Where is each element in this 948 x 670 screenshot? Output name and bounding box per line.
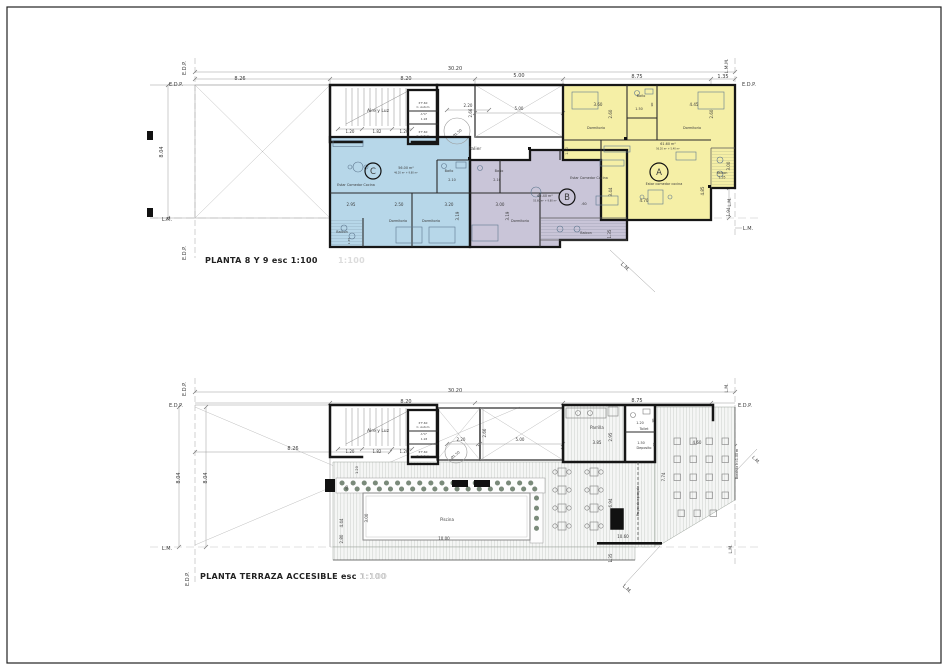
lot-edge <box>195 405 330 547</box>
plan-label: 65.40 m² <box>537 194 553 198</box>
plan-label: L.M. <box>162 217 173 223</box>
plan-label: Balcon <box>717 171 728 175</box>
plan-label: 8.04 <box>203 472 209 483</box>
sheet-border <box>7 7 941 663</box>
plan-label: Estar comedor cocina <box>646 182 683 186</box>
plan-label: 56.20 m² + 5.40 m² <box>656 148 680 151</box>
plan-label: 3.00 <box>496 202 505 207</box>
plan-label: L.M. <box>727 197 733 206</box>
plan-label: 2.10 <box>493 178 501 182</box>
plan1-title: PLANTA 8 Y 9 esc 1:100 <box>205 256 318 265</box>
plan-label: A°C° <box>421 112 428 116</box>
plan-label: L.M. <box>621 584 633 596</box>
plan-label: 5.00 <box>515 106 524 111</box>
plan-label: 2.20 <box>464 103 473 108</box>
boundary-bar <box>597 542 662 545</box>
plan-label: 1.18 <box>421 117 427 121</box>
wall-tick <box>147 208 153 217</box>
plan-label: 8.75 <box>631 398 642 404</box>
plan-label: Ø1.50 <box>449 450 460 461</box>
floor-plans-sheet: E.D.P.E.D.P.30.208.268.205.008.751.35E.D… <box>0 0 948 670</box>
plan-label: 2.60 <box>608 109 613 118</box>
lot-edge <box>150 85 330 218</box>
plan-8-9: E.D.P.E.D.P.30.208.268.205.008.751.35E.D… <box>147 58 760 292</box>
plan-label: 8.26 <box>234 76 245 82</box>
plan-label: 2.10 <box>448 178 456 182</box>
plan-label: C. Autom <box>417 454 430 458</box>
plan-label: 2.80 <box>339 534 344 543</box>
plan-label: E.D.P. <box>738 403 752 409</box>
plan-label: 10.60 <box>617 534 629 539</box>
plan-label: 3.00 <box>364 513 369 522</box>
plan-label: 2.95 <box>347 202 356 207</box>
plan-label: Parrilla <box>590 425 604 430</box>
plan-label: E.D.P. <box>182 246 188 260</box>
plan-label: 55.60 m² + 9.80 m² <box>533 200 557 203</box>
plan-label: E.D.P. <box>182 382 188 396</box>
plan-label: Baranda h=1.00 m <box>735 449 739 479</box>
plan-label: Aire y Luz <box>367 428 390 434</box>
plan-label: 2.66 <box>482 428 487 437</box>
plan-label: C. Autom <box>417 105 430 109</box>
plan-label: 3.60 <box>594 102 603 107</box>
plan-label: 1.20 <box>400 129 409 134</box>
plan-label: 4.70 <box>640 198 649 203</box>
balcony-b <box>541 219 626 239</box>
plan-label: 30.20 <box>448 66 462 72</box>
plan-label: .60 <box>345 485 349 491</box>
plan-label: Dormitorio <box>511 219 529 223</box>
plan-label: 5.00 <box>513 73 524 79</box>
plan-label: Estar Comedor Cocina <box>337 183 375 187</box>
plan-label: L.M. <box>743 226 754 232</box>
plan-label: 1.20 <box>355 466 359 474</box>
plan-label: 4.60 <box>693 440 702 445</box>
plan-label: .90 <box>652 443 656 448</box>
plan-label: Palier <box>469 146 482 152</box>
plan-label: Dormitorio <box>683 126 701 130</box>
plan-label: 3.85 <box>593 440 602 445</box>
bench <box>474 480 490 487</box>
door-jamb <box>708 185 711 188</box>
plan-label: B <box>564 193 570 203</box>
plan-label: L.M. <box>724 383 730 392</box>
plan-label: 3.19 <box>505 211 510 220</box>
plan-label: 10.00 <box>438 536 450 541</box>
plan-label: C. Autom <box>417 425 430 429</box>
plan-label: 1.50 <box>637 441 645 445</box>
plan-label: 4.85 <box>700 186 705 195</box>
plan-label: L.M. <box>162 546 173 552</box>
void-center <box>445 85 565 137</box>
plan-label: 1.20 <box>346 129 355 134</box>
plan-label: 1.20 <box>636 421 644 425</box>
plan2-title: PLANTA TERRAZA ACCESIBLE esc 1:100 <box>200 572 387 581</box>
door-jamb <box>528 147 531 150</box>
plan-label: L.M.M. <box>724 59 730 74</box>
plan-label: Dormitorio <box>587 126 605 130</box>
plan-label: 1.94 <box>726 207 731 216</box>
plan-label: 6.94 <box>608 498 613 507</box>
plan-label: 1.35 <box>608 553 613 562</box>
plan-label: 2.95 <box>608 432 613 441</box>
door-jamb <box>468 157 471 160</box>
wall-tick <box>147 131 153 140</box>
plan-label: A <box>656 168 662 178</box>
plan-label: Proyeccion pergola <box>636 486 640 516</box>
plan-label: 1.35 <box>607 229 612 238</box>
plan-label: A°C° <box>421 432 428 436</box>
plan-label: 1.35 <box>718 176 725 180</box>
door-jamb <box>624 137 627 140</box>
plan-label: 1.82 <box>373 129 382 134</box>
plan-label: 1.20 <box>346 449 355 454</box>
plan-label: E.D.P. <box>742 82 756 88</box>
planter-box <box>325 479 335 492</box>
plan-label: E.D.P. <box>169 82 183 88</box>
plan-label: E.D.P. <box>185 572 191 586</box>
plan-label: 1.20 <box>400 449 409 454</box>
plan-label: Aire y Luz <box>367 108 390 114</box>
plan-label: 8.20 <box>400 399 411 405</box>
plan-label: 8.75 <box>631 74 642 80</box>
plan-label: L.M. <box>750 455 761 466</box>
plan-label: Deposito <box>636 446 651 450</box>
plan-label: 3.19 <box>455 211 460 220</box>
plan-label: 8.04 <box>176 472 182 483</box>
plan-label: Dormitorio <box>422 219 440 223</box>
plan-label: Balcon <box>336 230 347 234</box>
plan-label: 61.60 m² <box>660 142 676 146</box>
plan-label: .60 <box>581 202 586 206</box>
plan-label: 4.44 <box>339 518 344 527</box>
plan-label: 2.66 <box>468 108 473 117</box>
plan-label: C. Autom <box>417 134 430 138</box>
plan-label: E.D.P. <box>169 403 183 409</box>
plan-label: Baño <box>495 169 504 173</box>
plan-label: .90 <box>651 419 655 424</box>
plan-label: Estar Comedor Cocina <box>570 176 608 180</box>
plan-label: E.D.P. <box>182 61 188 75</box>
void-patio <box>195 85 330 218</box>
plan-label: Baño <box>637 94 646 98</box>
plan-label: 8.04 <box>159 146 165 157</box>
plan-label: 1.50 <box>635 107 643 111</box>
plan-label: .90 <box>650 103 654 108</box>
plan-label: 30.20 <box>448 388 462 394</box>
plan-label: L.M. <box>619 262 631 274</box>
plan-label: 5.00 <box>516 437 525 442</box>
plan-label: 1.82 <box>373 449 382 454</box>
plan-label: Balcon <box>580 231 591 235</box>
plan-label: 3.20 <box>445 202 454 207</box>
plan-label: 8.20 <box>400 76 411 82</box>
plan-label: Piscina <box>440 517 454 522</box>
plan-label: 1.35 <box>717 74 728 80</box>
plan-label: 2.60 <box>709 109 714 118</box>
plan-terraza: E.D.P.E.D.P.30.208.208.75E.D.P.L.M.8.048… <box>150 378 761 595</box>
plan-label: L.M. <box>728 544 734 553</box>
plan-label: 8.26 <box>287 446 298 452</box>
plan-label: Toilet <box>639 427 650 431</box>
plan-label: C <box>370 167 376 177</box>
plan-label: 3.44 <box>608 187 613 196</box>
plan-label: 46.20 m² + 9.80 m² <box>394 172 418 175</box>
plan-label: 2.20 <box>457 437 466 442</box>
plan-label: 1.35 <box>347 238 351 245</box>
plan-label: 1.50 <box>565 147 569 155</box>
pergola-post <box>611 509 623 529</box>
bench <box>452 480 468 487</box>
plan-label: 2.50 <box>395 202 404 207</box>
plan-label: 1.18 <box>421 437 427 441</box>
plan-label: 3.00 <box>726 161 731 170</box>
plan-label: 7.74 <box>661 472 666 481</box>
plan-label: Baño <box>445 169 454 173</box>
plan-label: Dormitorio <box>389 219 407 223</box>
plan-label: 56.00 m² <box>398 166 414 170</box>
plan1-title-ghost: 1:100 <box>338 256 365 265</box>
plan2-title-ghost: 1:100 <box>360 572 387 581</box>
plan-label: 4.45 <box>690 102 699 107</box>
